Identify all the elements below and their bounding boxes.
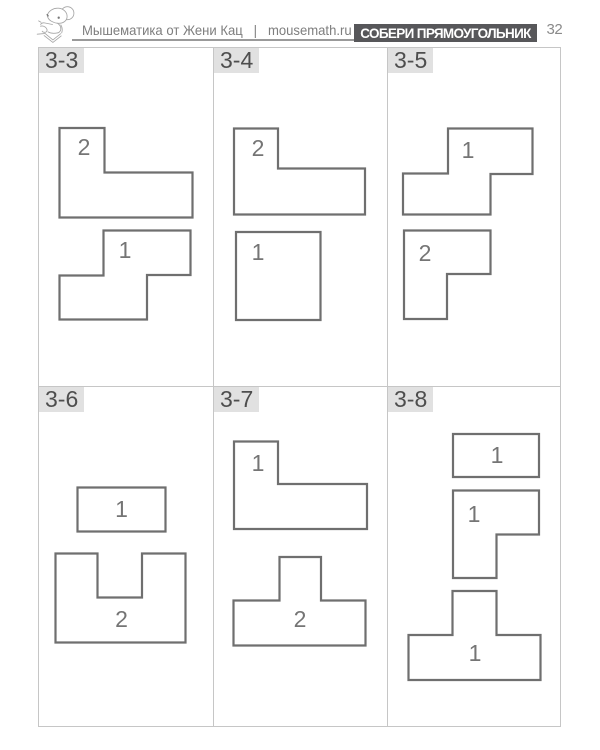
- svg-text:1: 1: [469, 640, 482, 666]
- svg-text:2: 2: [78, 134, 91, 160]
- svg-text:2: 2: [419, 240, 432, 266]
- svg-text:2: 2: [294, 606, 307, 632]
- svg-text:1: 1: [491, 442, 504, 468]
- svg-text:2: 2: [115, 606, 128, 632]
- svg-text:2: 2: [252, 135, 265, 161]
- svg-text:1: 1: [462, 137, 475, 163]
- svg-text:1: 1: [468, 501, 481, 527]
- svg-text:1: 1: [252, 239, 265, 265]
- svg-text:1: 1: [252, 450, 265, 476]
- svg-text:1: 1: [119, 237, 132, 263]
- svg-text:1: 1: [115, 496, 128, 522]
